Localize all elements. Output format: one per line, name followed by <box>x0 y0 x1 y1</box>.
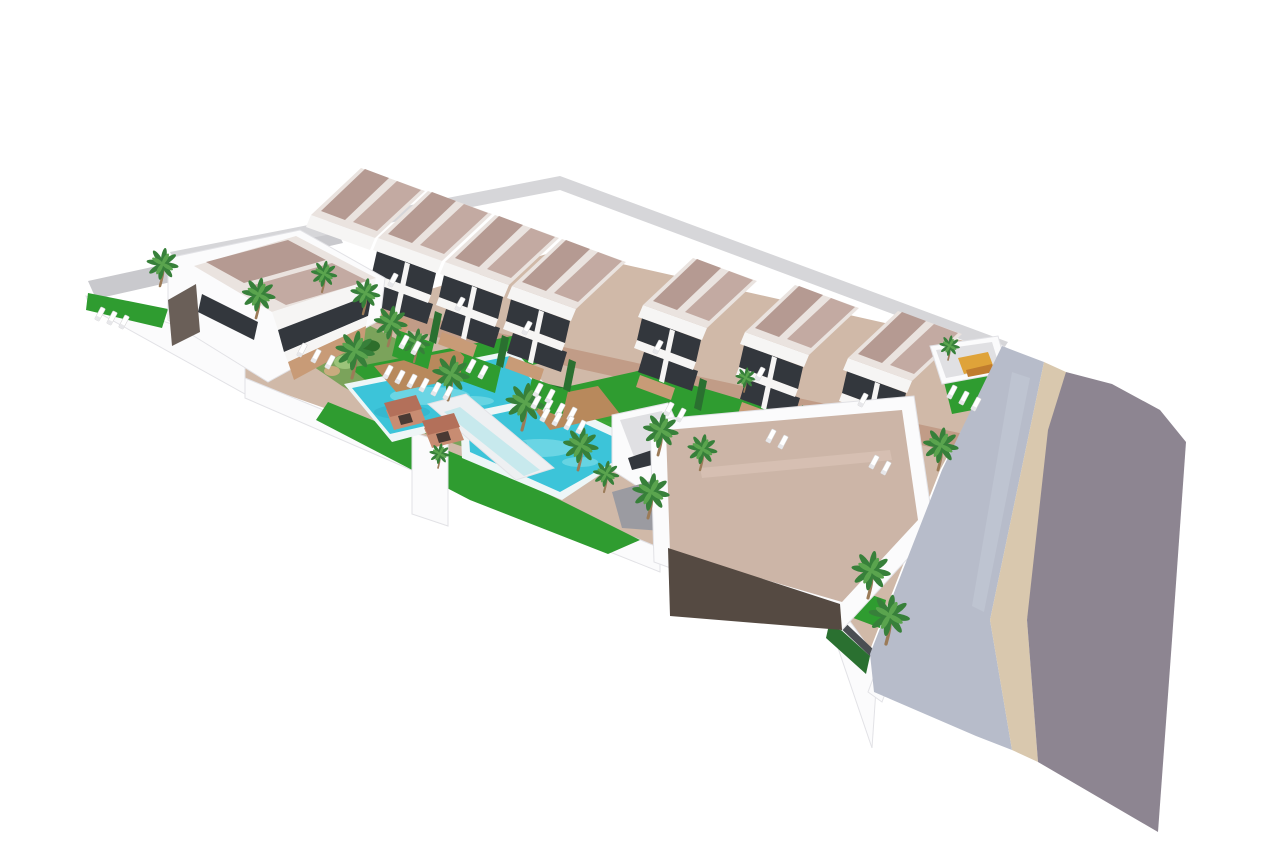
street <box>1027 372 1186 832</box>
architectural-render <box>0 0 1280 852</box>
render-canvas <box>0 0 1280 852</box>
wall-pillar <box>412 432 448 526</box>
